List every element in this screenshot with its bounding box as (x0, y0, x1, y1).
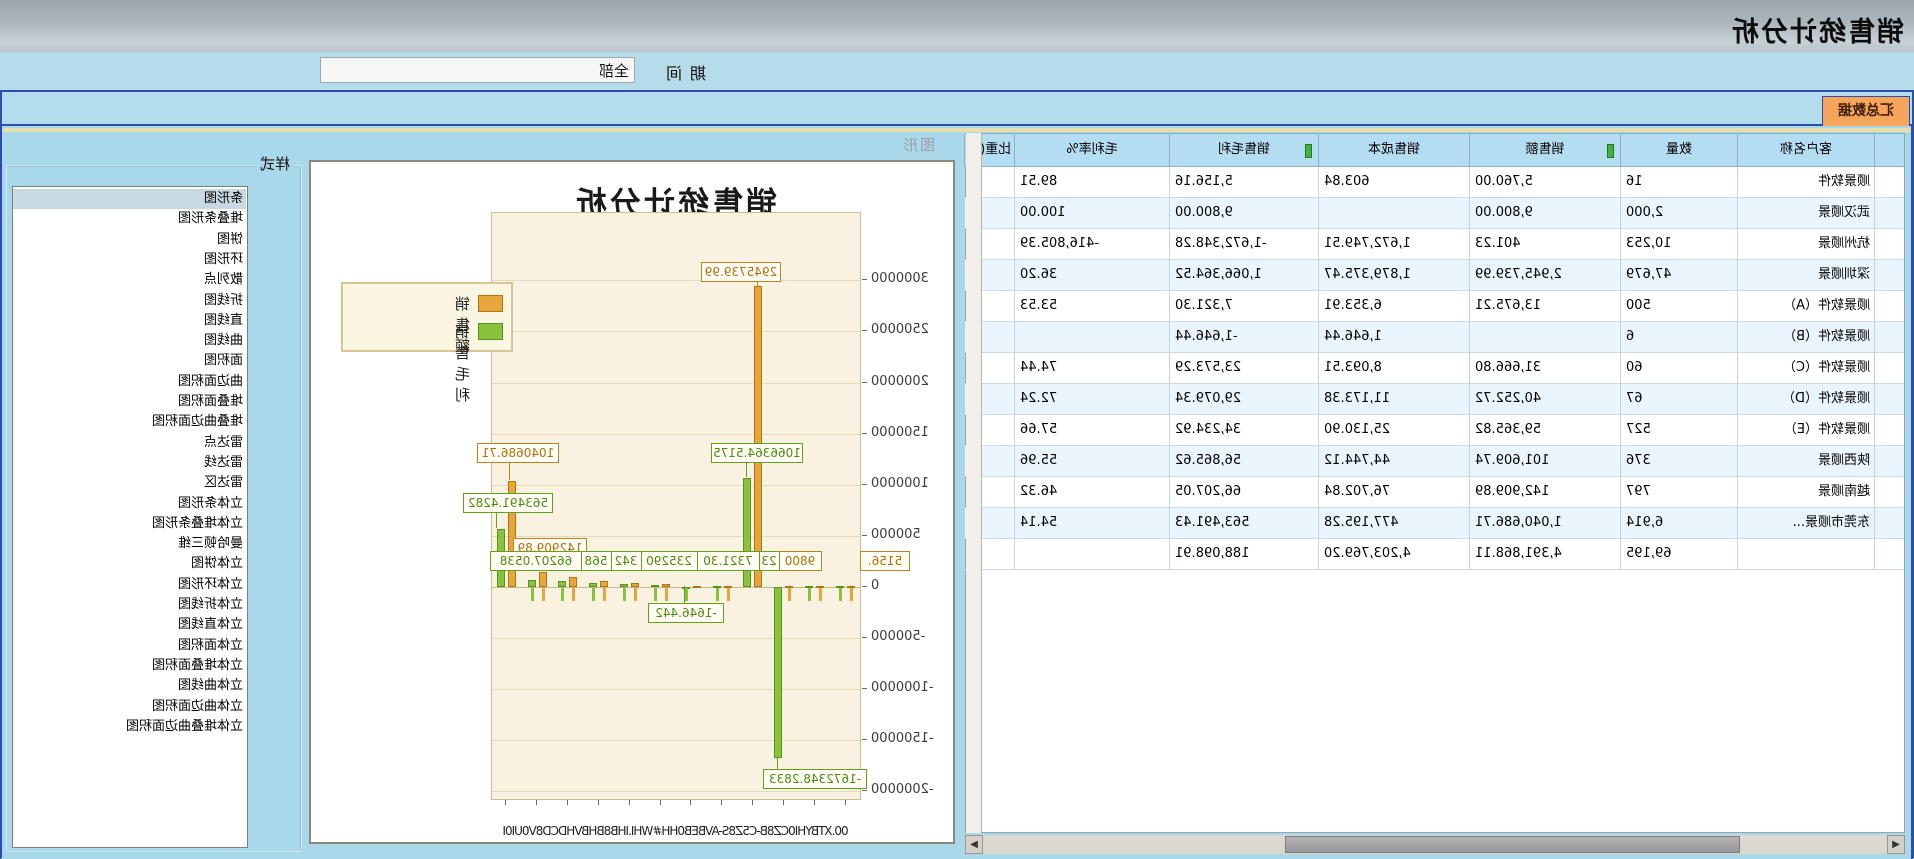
table-cell[interactable]: 29,079.34 (1169, 384, 1318, 415)
table-cell[interactable]: 6,914 (1620, 508, 1737, 539)
y-axis-label: -500000 (871, 629, 941, 644)
x-axis-tick (505, 800, 506, 805)
gridline (492, 485, 860, 486)
table-cell[interactable]: 2,000 (1620, 198, 1737, 229)
y-axis-label: 2500000 (871, 322, 941, 337)
table-cell[interactable]: 23,573.29 (1169, 353, 1318, 384)
callout-line (777, 757, 778, 769)
bar-profit (774, 587, 782, 758)
table-cell[interactable]: 10,253 (1620, 229, 1737, 260)
style-list-item[interactable]: 堆叠条形图 (13, 209, 246, 229)
table-cell[interactable]: 16 (1620, 167, 1737, 198)
table-cell[interactable]: 100.00 (1014, 198, 1169, 229)
table-vertical-scrollbar[interactable] (966, 133, 982, 833)
table-cell[interactable]: 杭州顺景 (1737, 229, 1874, 260)
table-cell[interactable] (1874, 415, 1904, 446)
data-label: -1646.442 (648, 603, 724, 623)
callout-stub (716, 588, 719, 601)
x-axis-tick (536, 800, 537, 805)
panel-accent-line (3, 128, 1911, 132)
callout-stub (654, 588, 657, 601)
callout-stub (727, 588, 730, 601)
callout-stub (685, 588, 688, 601)
table-cell[interactable] (1014, 539, 1169, 570)
table-cell[interactable]: 59,365.82 (1469, 415, 1620, 446)
y-axis-tick (862, 279, 867, 280)
table-cell[interactable]: 44,744.12 (1318, 446, 1469, 477)
table-cell[interactable]: 1,646.44 (1318, 322, 1469, 353)
table-cell[interactable]: 55.96 (1014, 446, 1169, 477)
gridline (492, 383, 860, 384)
data-label: 235290 (640, 551, 698, 571)
style-list-item[interactable]: 散列点 (13, 270, 246, 290)
callout-stub (665, 588, 668, 601)
callout-line (496, 513, 497, 528)
table-cell[interactable]: 2,945,739.99 (1469, 260, 1620, 291)
callout-line (746, 463, 747, 477)
table-cell[interactable]: 563,491.43 (1169, 508, 1318, 539)
profit-swatch-icon (478, 323, 503, 340)
bar-sales (693, 586, 701, 588)
table-cell[interactable]: 5,760.00 (1469, 167, 1620, 198)
table-cell[interactable]: 陕西顺景 (1737, 446, 1874, 477)
x-axis-tick (660, 800, 661, 805)
table-cell[interactable]: -1,672,348.28 (1169, 229, 1318, 260)
tab-summary-data[interactable]: 汇总数据 (1822, 96, 1910, 126)
callout-stub (819, 588, 822, 601)
scrollbar-thumb[interactable] (1285, 836, 1740, 853)
style-list-item[interactable]: 曲边面积图 (13, 372, 246, 392)
table-cell[interactable] (1874, 260, 1904, 291)
bar-sales (539, 572, 547, 587)
bar-sales (631, 583, 639, 587)
callout-stub (531, 588, 534, 601)
period-label: 期间 (658, 60, 706, 84)
table-cell[interactable]: 25,130.90 (1318, 415, 1469, 446)
column-header[interactable]: 数量 (1620, 134, 1737, 167)
style-list-item[interactable]: 立体曲边面积图 (13, 697, 246, 717)
data-label: 342 (610, 551, 642, 571)
table-cell[interactable]: 越南顺景 (1737, 477, 1874, 508)
data-label: 23 (758, 551, 780, 571)
gridline (492, 689, 860, 690)
style-list-item[interactable]: 堆叠面积图 (13, 392, 246, 412)
data-label: 563491.4282 (463, 493, 553, 513)
table-cell[interactable] (1874, 291, 1904, 322)
style-list-item[interactable]: 立体饼图 (13, 554, 246, 574)
style-list-item[interactable]: 立体面积图 (13, 636, 246, 656)
table-cell[interactable]: 89.51 (1014, 167, 1169, 198)
bar-sales (570, 577, 578, 587)
callout-stub (562, 588, 565, 601)
data-label: 568 (580, 551, 612, 571)
callout-stub (839, 588, 842, 601)
table-cell[interactable]: 67 (1620, 384, 1737, 415)
callout-line (509, 463, 510, 480)
table-cell[interactable]: 顺景软件（B） (1737, 322, 1874, 353)
window-border-right (0, 92, 2, 858)
callout-stub (808, 588, 811, 601)
table-cell[interactable]: 40,252.72 (1469, 384, 1620, 415)
data-label: 2945739.99 (701, 262, 781, 282)
y-axis-label: 1000000 (871, 476, 941, 491)
table-cell[interactable]: 188,098.91 (1169, 539, 1318, 570)
column-header[interactable]: 客户名称 (1737, 134, 1874, 167)
y-axis-label: 500000 (871, 527, 941, 542)
table-cell[interactable]: 4,203,769.20 (1318, 539, 1469, 570)
table-cell[interactable]: 53.53 (1014, 291, 1169, 322)
style-list-item[interactable]: 立体条形图 (13, 494, 246, 514)
gridline (492, 536, 860, 537)
y-axis-label: 1500000 (871, 425, 941, 440)
y-axis-label: 2000000 (871, 374, 941, 389)
table-cell[interactable] (1318, 198, 1469, 229)
y-axis-tick (862, 688, 867, 689)
table-cell[interactable]: 1,040,686.71 (1469, 508, 1620, 539)
table-cell[interactable]: 9,800.00 (1169, 198, 1318, 229)
table-cell[interactable]: 142,909.89 (1469, 477, 1620, 508)
table-cell[interactable]: 57.66 (1014, 415, 1169, 446)
sort-indicator-icon (1607, 144, 1614, 158)
data-label: -1672348.2833 (763, 769, 867, 789)
y-axis-tick (862, 484, 867, 485)
table-cell[interactable]: 72.24 (1014, 384, 1169, 415)
app-window: 销售统计分析 期间 汇总数据 客户名称数量销售额销售成本销售毛利毛利率%比重(%… (0, 0, 1914, 859)
data-label: 7321.30 (696, 551, 760, 571)
table-cell[interactable]: 74.44 (1014, 353, 1169, 384)
data-label: 1066364.5175 (711, 443, 803, 463)
sales-swatch-icon (478, 295, 503, 312)
table-cell[interactable] (1874, 384, 1904, 415)
column-header[interactable] (1874, 134, 1904, 167)
bar-sales (662, 584, 670, 587)
bar-sales (600, 581, 608, 587)
style-list-item[interactable]: 立体折线图 (13, 595, 246, 615)
table-cell[interactable] (1874, 167, 1904, 198)
scroll-left-arrow-icon[interactable]: ◀ (1887, 835, 1905, 854)
table-cell[interactable]: 1,066,364.52 (1169, 260, 1318, 291)
table-cell[interactable]: 5,156.16 (1169, 167, 1318, 198)
callout-line (757, 282, 758, 286)
table-cell[interactable]: 4,391,868.11 (1469, 539, 1620, 570)
style-list-item[interactable]: 堆叠曲边面积图 (13, 412, 246, 432)
table-cell[interactable]: 34,234.92 (1169, 415, 1318, 446)
table-cell[interactable]: 顺景软件（E） (1737, 415, 1874, 446)
style-list-item[interactable]: 雷达区 (13, 473, 246, 493)
table-cell[interactable]: 6,353.91 (1318, 291, 1469, 322)
tab-strip (0, 92, 1914, 126)
style-group-label: 样式 (256, 153, 294, 174)
table-cell[interactable]: 8,093.51 (1318, 353, 1469, 384)
table-cell[interactable] (1874, 198, 1904, 229)
table-cell[interactable] (1874, 539, 1904, 570)
callout-stub (542, 588, 545, 601)
table-cell[interactable] (1737, 539, 1874, 570)
summary-table[interactable]: 客户名称数量销售额销售成本销售毛利毛利率%比重(%顺景软件165,760.006… (965, 133, 1905, 833)
column-header[interactable]: 销售成本 (1318, 134, 1469, 167)
title-bar (0, 0, 1914, 52)
table-cell[interactable]: 顺景软件 (1737, 167, 1874, 198)
table-cell[interactable]: 527 (1620, 415, 1737, 446)
table-cell[interactable]: 477,195.28 (1318, 508, 1469, 539)
x-axis-tick (629, 800, 630, 805)
gridline (492, 791, 860, 792)
y-axis-tick (862, 382, 867, 383)
table-cell[interactable]: 7,321.30 (1169, 291, 1318, 322)
table-cell[interactable]: 69,195 (1620, 539, 1737, 570)
table-cell[interactable]: 9,800.00 (1469, 198, 1620, 229)
table-cell[interactable]: 66,207.05 (1169, 477, 1318, 508)
style-list-item[interactable]: 立体堆叠曲边面积图 (13, 717, 246, 737)
y-axis-tick (862, 535, 867, 536)
table-cell[interactable]: -1,646.44 (1169, 322, 1318, 353)
data-label: 5156. (860, 551, 910, 571)
table-cell[interactable]: 76,702.84 (1318, 477, 1469, 508)
table-cell[interactable]: 11,173.38 (1318, 384, 1469, 415)
callout-stub (603, 588, 606, 601)
style-list-item[interactable]: 直线图 (13, 311, 246, 331)
x-axis-tick (814, 800, 815, 805)
table-cell[interactable]: 56,865.62 (1169, 446, 1318, 477)
table-cell[interactable]: 武汉顺景 (1737, 198, 1874, 229)
sort-indicator-icon (1305, 144, 1312, 158)
style-list-item[interactable]: 折线图 (13, 291, 246, 311)
column-header[interactable]: 毛利率% (1014, 134, 1169, 167)
style-list-item[interactable]: 曼哈顿三维 (13, 534, 246, 554)
table-cell[interactable]: 顺景软件（A） (1737, 291, 1874, 322)
bar-profit (589, 583, 597, 587)
table-cell[interactable]: 47,679 (1620, 260, 1737, 291)
table-cell[interactable] (1874, 508, 1904, 539)
table-cell[interactable]: 500 (1620, 291, 1737, 322)
y-axis-tick (862, 790, 867, 791)
bar-sales (755, 286, 763, 587)
callout-line (684, 586, 685, 603)
callout-stub (573, 588, 576, 601)
y-axis-tick (862, 330, 867, 331)
style-list-item[interactable]: 环形图 (13, 250, 246, 270)
bar-profit (651, 585, 659, 587)
table-cell[interactable]: 1,879,375.47 (1318, 260, 1469, 291)
bar-profit (528, 580, 536, 587)
table-cell[interactable]: 顺景软件（C） (1737, 353, 1874, 384)
table-cell[interactable]: 东莞市顺景... (1737, 508, 1874, 539)
x-axis-labels: 00.XTBYHI0CZ8B-C5Z8S-AVBEB0HH#WHI.IHB8BH… (488, 824, 864, 838)
callout-stub (592, 588, 595, 601)
style-list-item[interactable]: 立体曲线图 (13, 676, 246, 696)
gridline (492, 280, 860, 281)
table-cell[interactable]: 6 (1620, 322, 1737, 353)
style-list-item[interactable]: 条形图 (13, 189, 246, 209)
table-cell[interactable] (1874, 322, 1904, 353)
callout-stub (788, 588, 791, 601)
legend-label: 销售毛利 (455, 321, 470, 405)
table-cell[interactable]: 深圳顺景 (1737, 260, 1874, 291)
gridline (492, 331, 860, 332)
data-label: 9800 (778, 551, 822, 571)
table-cell[interactable]: 46.32 (1014, 477, 1169, 508)
table-cell[interactable] (1874, 477, 1904, 508)
x-axis-tick (752, 800, 753, 805)
table-cell[interactable] (1874, 446, 1904, 477)
bar-profit (559, 581, 567, 587)
table-cell[interactable]: 1,672,749.51 (1318, 229, 1469, 260)
x-axis-tick (721, 800, 722, 805)
table-cell[interactable]: 31,666.80 (1469, 353, 1620, 384)
gridline (492, 434, 860, 435)
style-list-item[interactable]: 立体环形图 (13, 575, 246, 595)
toolbar (0, 52, 1914, 92)
table-cell[interactable]: 401.23 (1469, 229, 1620, 260)
table-horizontal-scrollbar[interactable]: ◀ ▶ (965, 835, 1905, 854)
style-list-item[interactable]: 饼图 (13, 230, 246, 250)
style-list-item[interactable]: 立体堆叠条形图 (13, 514, 246, 534)
y-axis-label: 3000000 (871, 271, 941, 286)
table-cell[interactable]: 顺景软件（D） (1737, 384, 1874, 415)
y-axis-tick (862, 637, 867, 638)
x-axis-tick (690, 800, 691, 805)
table-cell[interactable]: 36.20 (1014, 260, 1169, 291)
callout-stub (634, 588, 637, 601)
x-axis-tick (783, 800, 784, 805)
scroll-right-arrow-icon[interactable]: ▶ (965, 835, 983, 854)
column-header[interactable]: 销售额 (1469, 134, 1620, 167)
y-axis-label: -1000000 (871, 680, 941, 695)
style-list-item[interactable]: 立体堆叠面积图 (13, 656, 246, 676)
y-axis-label: 0 (871, 578, 941, 593)
style-list-item[interactable]: 曲线图 (13, 331, 246, 351)
table-cell[interactable]: 101,609.74 (1469, 446, 1620, 477)
chart-legend: 销售额 销售毛利 (341, 282, 513, 352)
table-cell[interactable]: 797 (1620, 477, 1737, 508)
data-label: 66207.0538 (490, 551, 582, 571)
chart-area-label: 图形 (901, 134, 935, 155)
table-cell[interactable]: 603.84 (1318, 167, 1469, 198)
mirrored-surface: 销售统计分析 期间 汇总数据 客户名称数量销售额销售成本销售毛利毛利率%比重(%… (0, 0, 1914, 859)
gridline (492, 638, 860, 639)
table-cell[interactable]: 54.14 (1014, 508, 1169, 539)
page-title: 销售统计分析 (1730, 10, 1904, 49)
callout-stub (623, 588, 626, 601)
x-axis-tick (567, 800, 568, 805)
table-cell[interactable]: 60 (1620, 353, 1737, 384)
style-list-item[interactable]: 雷达线 (13, 453, 246, 473)
callout-stub (850, 588, 853, 601)
table-cell[interactable] (1874, 353, 1904, 384)
chart-style-listbox[interactable]: 条形图堆叠条形图饼图环形图散列点折线图直线图曲线图面积图曲边面积图堆叠面积图堆叠… (12, 186, 248, 848)
table-cell[interactable]: -416,805.39 (1014, 229, 1169, 260)
table-cell[interactable] (1014, 322, 1169, 353)
y-axis-tick (862, 739, 867, 740)
y-axis-label: -2000000 (871, 782, 941, 797)
data-label: 1040686.71 (477, 443, 559, 463)
style-list-item[interactable]: 立体直线图 (13, 615, 246, 635)
x-axis-tick (598, 800, 599, 805)
y-axis-tick (862, 586, 867, 587)
y-axis-label: -1500000 (871, 731, 941, 746)
y-axis-tick (862, 433, 867, 434)
style-list-item[interactable]: 雷达点 (13, 433, 246, 453)
table-cell[interactable] (1469, 322, 1620, 353)
gridline (492, 740, 860, 741)
style-list-item[interactable]: 面积图 (13, 351, 246, 371)
x-axis-tick (845, 800, 846, 805)
table-cell[interactable]: 376 (1620, 446, 1737, 477)
column-header[interactable]: 销售毛利 (1169, 134, 1318, 167)
table-cell[interactable]: 13,675.21 (1469, 291, 1620, 322)
bar-profit (620, 584, 628, 587)
table-cell[interactable] (1874, 229, 1904, 260)
period-input[interactable] (320, 57, 635, 83)
